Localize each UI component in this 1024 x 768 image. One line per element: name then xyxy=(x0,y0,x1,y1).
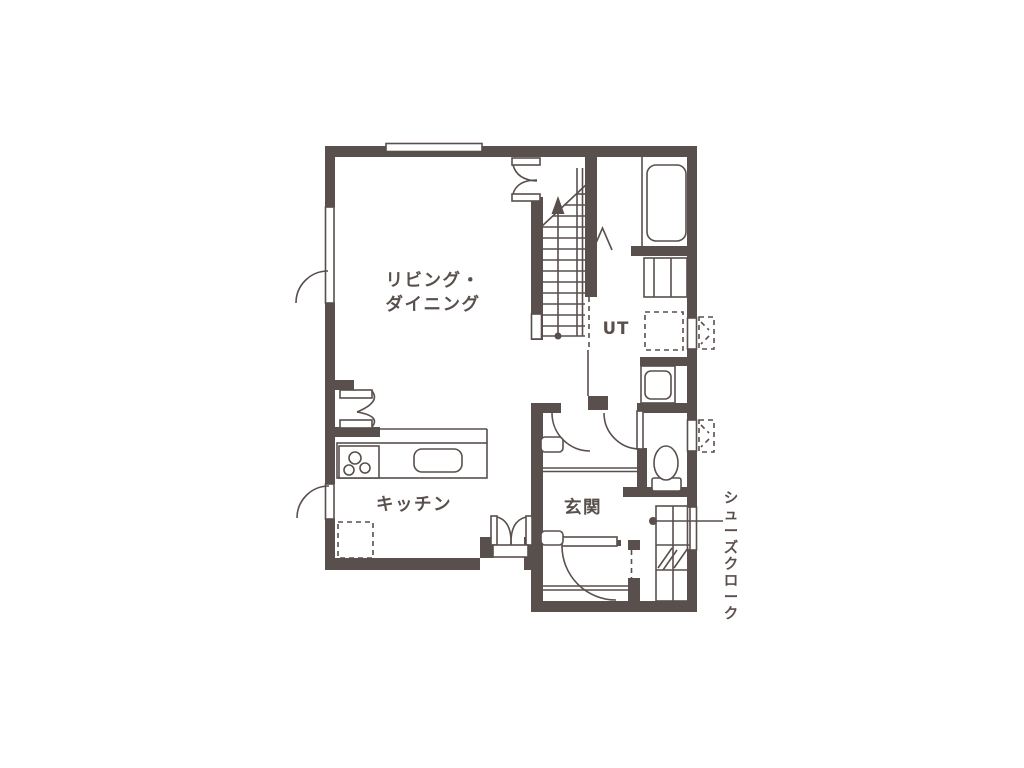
door-swing-entrance xyxy=(562,546,616,600)
door-swing-closet-a xyxy=(513,165,537,181)
bathtub xyxy=(647,165,686,241)
door-sill-kitchen xyxy=(493,545,528,557)
door-swing-left-upper xyxy=(296,271,328,303)
stair-base-opening xyxy=(532,314,542,339)
bathroom xyxy=(642,157,686,246)
door-leaf-pantry-b xyxy=(340,420,372,428)
living-dining-label: リビング・ xyxy=(386,270,481,291)
door-leaf-entrance xyxy=(562,537,617,546)
toilet-bowl xyxy=(654,446,678,480)
ac-outdoor-units xyxy=(699,317,714,452)
stair-arrow-origin-dot xyxy=(555,333,562,340)
window-left xyxy=(326,207,335,303)
washroom-fixtures xyxy=(641,258,687,403)
kitchen-label: キッチン xyxy=(376,495,452,515)
floor-plan-drawing: リビング・ ダイニング キッチン 玄関 UT シューズクローク xyxy=(0,0,1024,768)
entrance-step xyxy=(541,437,563,452)
living-dining-label: ダイニング xyxy=(386,294,481,315)
door-swing-toilet xyxy=(604,413,640,449)
door-leaf-kitchen-a xyxy=(491,516,497,545)
kitchen-fixtures xyxy=(337,429,487,558)
window-right-toilet xyxy=(688,420,697,451)
toilet-fixture xyxy=(652,446,681,491)
door-leaf-closet-a xyxy=(512,158,540,165)
door-leaf-pantry-a xyxy=(340,390,372,398)
wash-basin-bowl xyxy=(645,371,671,399)
utility-label: UT xyxy=(603,319,630,338)
washer-pan xyxy=(645,312,683,350)
door-swing-kitchen-b xyxy=(511,517,526,545)
window-top xyxy=(386,144,482,152)
floor-plan-page: リビング・ ダイニング キッチン 玄関 UT シューズクローク xyxy=(0,0,1024,768)
kitchen-sink xyxy=(414,449,462,472)
door-leaf-left-lower xyxy=(326,484,335,519)
stair-up-arrow-head xyxy=(552,196,565,214)
refrigerator-space xyxy=(338,522,373,558)
entrance-label: 玄関 xyxy=(564,497,602,518)
shoe-closet-label: シューズクローク xyxy=(724,491,739,623)
door-leaf-kitchen-b xyxy=(526,516,532,545)
door-leaf-toilet xyxy=(637,411,643,449)
entrance-step xyxy=(541,531,563,545)
window-right-closet xyxy=(688,507,697,550)
door-swing-kitchen-a xyxy=(497,517,511,545)
window-right-utility xyxy=(688,318,697,349)
door-swing-left-lower xyxy=(297,486,329,518)
door-leaf-closet-b xyxy=(512,194,540,201)
vanity-cabinet xyxy=(644,258,687,297)
shoe-closet-leader xyxy=(649,517,723,525)
door-swing-closet-b xyxy=(513,180,537,194)
